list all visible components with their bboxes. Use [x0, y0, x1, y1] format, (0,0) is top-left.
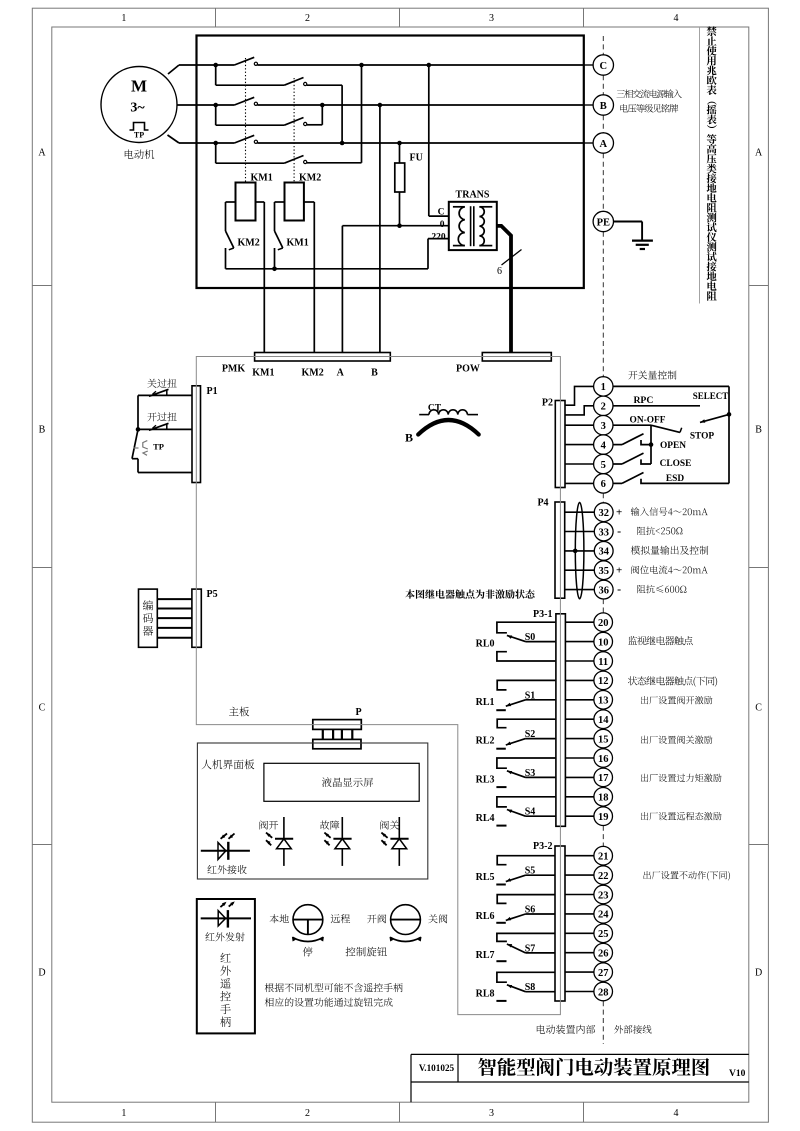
svg-text:11: 11: [598, 657, 608, 668]
svg-text:RL4: RL4: [476, 813, 495, 824]
svg-text:4: 4: [674, 1108, 679, 1119]
svg-text:P1: P1: [207, 386, 218, 397]
svg-text:23: 23: [598, 890, 609, 901]
svg-text:4: 4: [601, 440, 607, 451]
svg-text:2: 2: [305, 13, 310, 24]
svg-text:2: 2: [601, 402, 606, 413]
svg-text:V10: V10: [729, 1069, 746, 1079]
svg-text:D: D: [38, 968, 45, 979]
svg-text:19: 19: [598, 812, 609, 823]
svg-text:A: A: [600, 139, 608, 150]
svg-text:2: 2: [305, 1108, 310, 1119]
svg-text:3: 3: [489, 13, 494, 24]
svg-text:220: 220: [431, 232, 446, 242]
svg-text:35: 35: [598, 566, 609, 577]
svg-text:P4: P4: [537, 498, 548, 509]
svg-text:-: -: [617, 582, 621, 596]
svg-text:P3-1: P3-1: [533, 609, 552, 620]
svg-text:RL6: RL6: [476, 911, 495, 922]
svg-text:B: B: [600, 101, 607, 112]
svg-text:POW: POW: [456, 364, 480, 375]
svg-text:34: 34: [598, 547, 609, 558]
svg-text:24: 24: [598, 910, 609, 921]
svg-text:B: B: [371, 368, 378, 379]
svg-text:RL0: RL0: [476, 639, 495, 650]
svg-text:1: 1: [601, 382, 606, 393]
svg-text:3: 3: [489, 1108, 494, 1119]
svg-text:CLOSE: CLOSE: [660, 459, 692, 469]
svg-text:28: 28: [598, 987, 609, 998]
svg-text:S6: S6: [525, 905, 536, 916]
svg-text:TP: TP: [153, 442, 164, 452]
svg-text:P: P: [355, 707, 361, 718]
svg-text:A: A: [337, 368, 345, 379]
svg-text:36: 36: [598, 585, 609, 596]
svg-text:P5: P5: [207, 589, 218, 600]
svg-text:+: +: [616, 565, 622, 577]
svg-text:KM1: KM1: [252, 368, 274, 379]
svg-text:KM2: KM2: [238, 238, 260, 249]
svg-text:B: B: [405, 431, 413, 445]
svg-text:0: 0: [440, 220, 445, 230]
svg-text:3: 3: [601, 421, 606, 432]
svg-text:12: 12: [598, 676, 609, 687]
svg-text:S0: S0: [525, 632, 536, 643]
svg-text:M: M: [131, 77, 147, 96]
svg-text:17: 17: [598, 773, 609, 784]
svg-text:PE: PE: [597, 217, 610, 228]
svg-text:16: 16: [598, 754, 609, 765]
svg-text:FU: FU: [410, 153, 423, 164]
svg-text:PMK: PMK: [222, 364, 246, 375]
svg-text:RL3: RL3: [476, 774, 495, 785]
svg-text:S1: S1: [525, 690, 536, 701]
svg-text:15: 15: [598, 734, 609, 745]
svg-text:21: 21: [598, 852, 609, 863]
svg-text:3~: 3~: [130, 101, 145, 116]
svg-text:C: C: [755, 703, 762, 714]
svg-text:+: +: [616, 507, 622, 519]
svg-text:OPEN: OPEN: [660, 441, 686, 451]
svg-text:KM1: KM1: [287, 238, 309, 249]
svg-text:STOP: STOP: [690, 431, 715, 441]
svg-text:B: B: [755, 425, 762, 436]
svg-text:S7: S7: [525, 943, 536, 954]
svg-text:TP: TP: [134, 131, 144, 140]
svg-text:S5: S5: [525, 866, 536, 877]
svg-text:RL7: RL7: [476, 950, 495, 961]
svg-text:B: B: [39, 425, 46, 436]
svg-text:A: A: [755, 148, 763, 159]
svg-text:S8: S8: [525, 982, 536, 993]
svg-text:V.101025: V.101025: [419, 1063, 455, 1073]
svg-text:27: 27: [598, 968, 609, 979]
svg-text:1: 1: [121, 13, 126, 24]
svg-text:A: A: [38, 148, 46, 159]
svg-text:RL8: RL8: [476, 989, 495, 1000]
svg-text:6: 6: [497, 266, 502, 277]
svg-text:S2: S2: [525, 729, 536, 740]
svg-text:22: 22: [598, 871, 609, 882]
svg-text:20: 20: [598, 618, 609, 629]
svg-text:C: C: [438, 208, 445, 218]
svg-text:32: 32: [598, 508, 609, 519]
svg-text:TRANS: TRANS: [456, 190, 490, 201]
svg-text:RL1: RL1: [476, 697, 495, 708]
svg-text:C: C: [39, 703, 46, 714]
svg-text:S4: S4: [525, 807, 536, 818]
svg-text:-: -: [617, 524, 621, 538]
svg-text:S3: S3: [525, 768, 536, 779]
svg-text:RL5: RL5: [476, 872, 495, 883]
svg-text:14: 14: [598, 715, 609, 726]
svg-text:P2: P2: [542, 398, 553, 409]
svg-text:D: D: [755, 968, 762, 979]
svg-text:26: 26: [598, 949, 609, 960]
svg-text:25: 25: [598, 929, 609, 940]
svg-text:C: C: [600, 61, 608, 72]
svg-text:RL2: RL2: [476, 736, 495, 747]
svg-text:13: 13: [598, 696, 609, 707]
svg-text:1: 1: [121, 1108, 126, 1119]
svg-text:ESD: ESD: [666, 474, 684, 484]
svg-text:6: 6: [601, 479, 606, 490]
svg-text:4: 4: [674, 13, 679, 24]
svg-text:KM2: KM2: [301, 368, 323, 379]
svg-text:P3-2: P3-2: [533, 841, 552, 852]
svg-text:RPC: RPC: [633, 395, 653, 406]
svg-text:33: 33: [598, 527, 609, 538]
svg-text:5: 5: [601, 460, 606, 471]
svg-text:18: 18: [598, 793, 609, 804]
svg-text:ON-OFF: ON-OFF: [630, 416, 666, 426]
svg-text:SELECT: SELECT: [693, 391, 729, 401]
svg-text:10: 10: [598, 637, 609, 648]
